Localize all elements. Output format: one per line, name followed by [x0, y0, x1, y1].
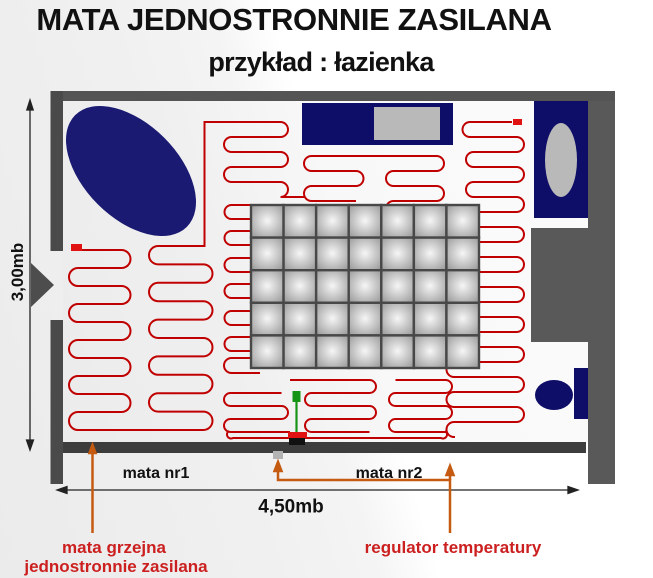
svg-text:regulator temperatury: regulator temperatury: [365, 538, 542, 557]
svg-text:przykład : łazienka: przykład : łazienka: [208, 47, 435, 77]
svg-text:3,00mb: 3,00mb: [8, 243, 27, 302]
svg-text:jednostronnie zasilana: jednostronnie zasilana: [23, 557, 208, 576]
svg-text:mata grzejna: mata grzejna: [62, 538, 166, 557]
svg-text:mata nr1: mata nr1: [123, 465, 190, 482]
svg-text:MATA JEDNOSTRONNIE ZASILANA: MATA JEDNOSTRONNIE ZASILANA: [36, 2, 551, 37]
svg-text:4,50mb: 4,50mb: [258, 497, 323, 518]
